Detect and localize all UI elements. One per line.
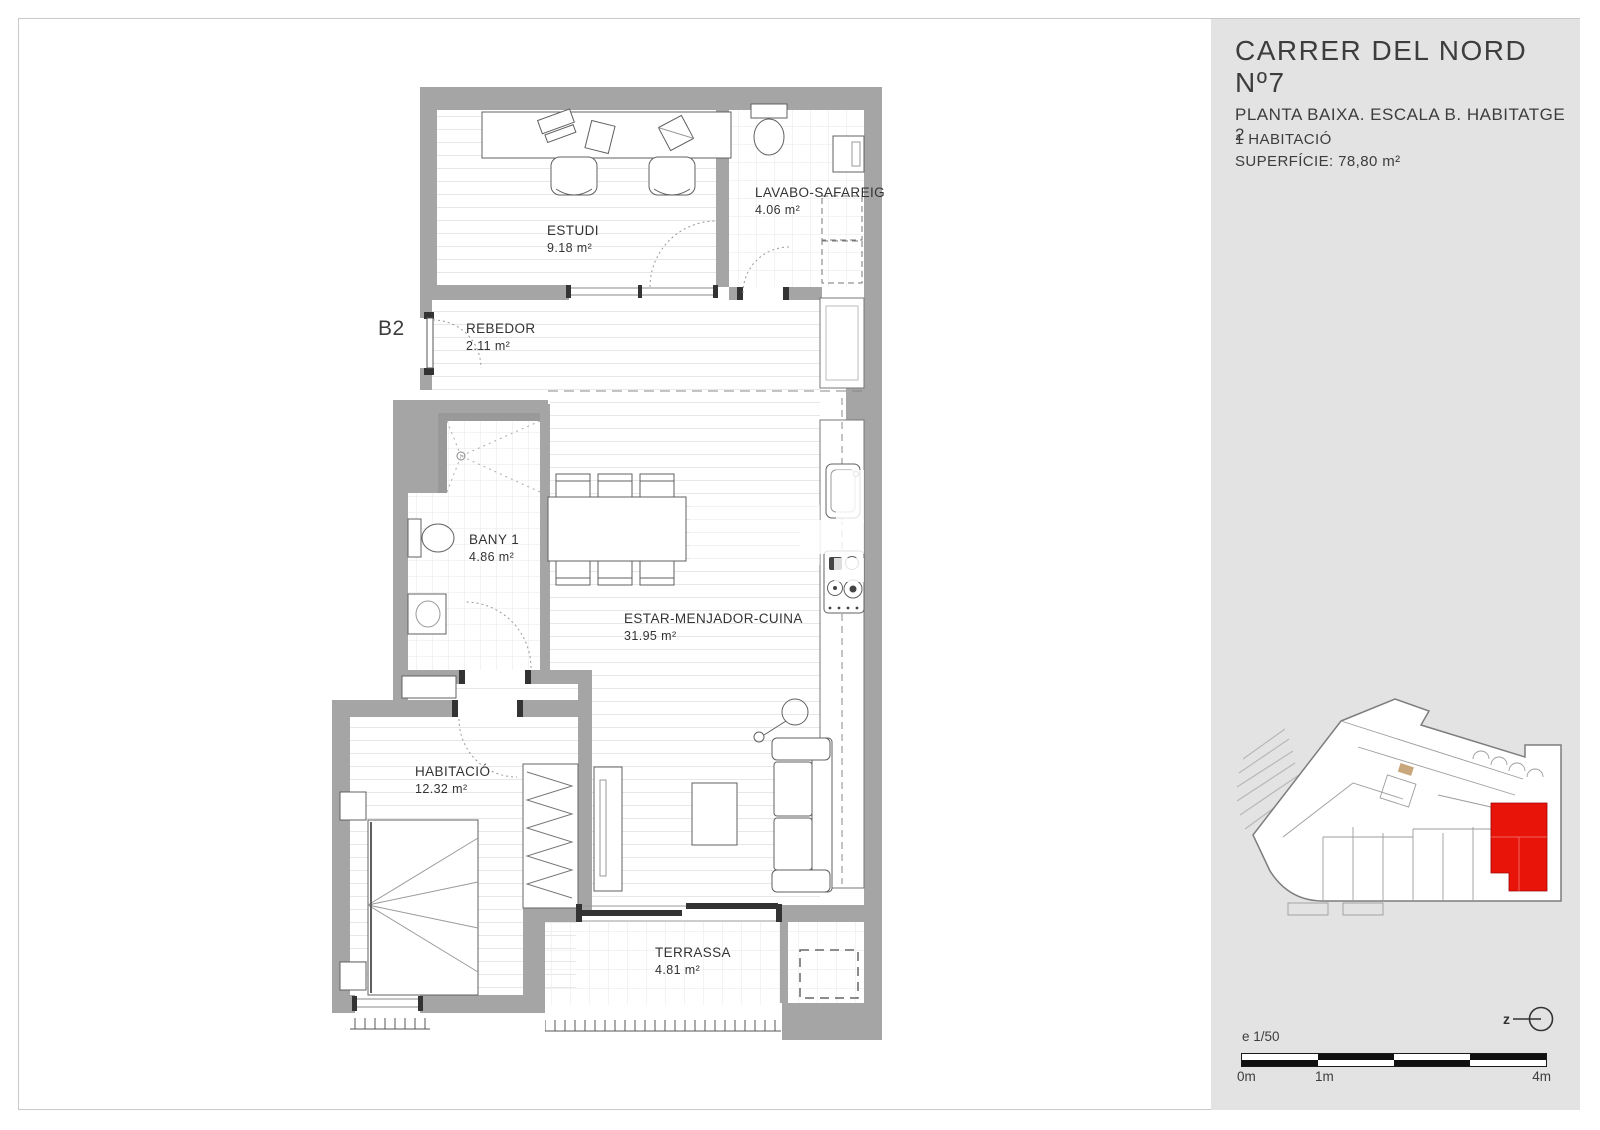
room-label-estudi: ESTUDI9.18 m² (547, 222, 599, 256)
room-label-habitacio: HABITACIÓ12.32 m² (415, 763, 490, 797)
scale-label-1m: 1m (1315, 1069, 1334, 1084)
wardrobe (523, 764, 578, 908)
room-label-estar: ESTAR-MENJADOR-CUINA31.95 m² (624, 610, 803, 644)
floor-plan-sheet: ESTUDI9.18 m² LAVABO-SAFAREIG4.06 m² REB… (0, 0, 1600, 1130)
scale-label-0m: 0m (1237, 1069, 1256, 1084)
building-overview-map (1223, 687, 1568, 937)
north-arrow: z (1503, 1005, 1557, 1033)
scale-bar-labels: 0m 1m 4m (1237, 1069, 1551, 1085)
dining-table (548, 474, 686, 585)
scale-bar (1241, 1053, 1547, 1067)
room-label-bany: BANY 14.86 m² (469, 531, 519, 565)
scale-ratio: e 1/50 (1242, 1029, 1280, 1044)
north-label: z (1503, 1011, 1510, 1027)
room-label-lavabo: LAVABO-SAFAREIG4.06 m² (755, 184, 885, 218)
north-arrow-icon (1511, 1005, 1557, 1033)
project-title: CARRER DEL NORD Nº7 (1235, 35, 1580, 99)
room-label-terrassa: TERRASSA4.81 m² (655, 944, 731, 978)
apartment-floor-plan (0, 0, 1200, 1130)
scale-label-4m: 4m (1532, 1069, 1551, 1084)
rooms-count: 1 HABITACIÓ (1235, 131, 1332, 148)
room-label-rebedor: REBEDOR2.11 m² (466, 320, 536, 354)
surface-area: SUPERFÍCIE: 78,80 m² (1235, 153, 1401, 170)
unit-label: B2 (378, 317, 405, 341)
info-sidebar: CARRER DEL NORD Nº7 PLANTA BAIXA. ESCALA… (1211, 19, 1580, 1110)
